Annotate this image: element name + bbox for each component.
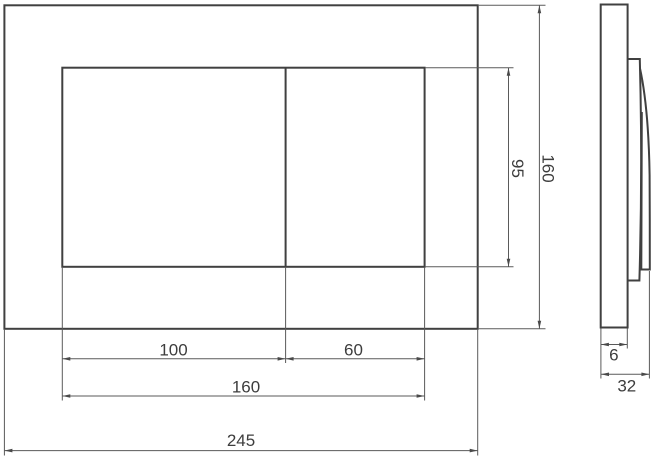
svg-text:32: 32: [617, 377, 636, 396]
svg-text:100: 100: [159, 341, 187, 360]
svg-text:160: 160: [539, 154, 558, 182]
svg-text:245: 245: [227, 431, 255, 450]
svg-text:6: 6: [609, 346, 618, 365]
svg-text:160: 160: [232, 378, 260, 397]
svg-text:60: 60: [344, 341, 363, 360]
svg-text:95: 95: [508, 159, 527, 178]
